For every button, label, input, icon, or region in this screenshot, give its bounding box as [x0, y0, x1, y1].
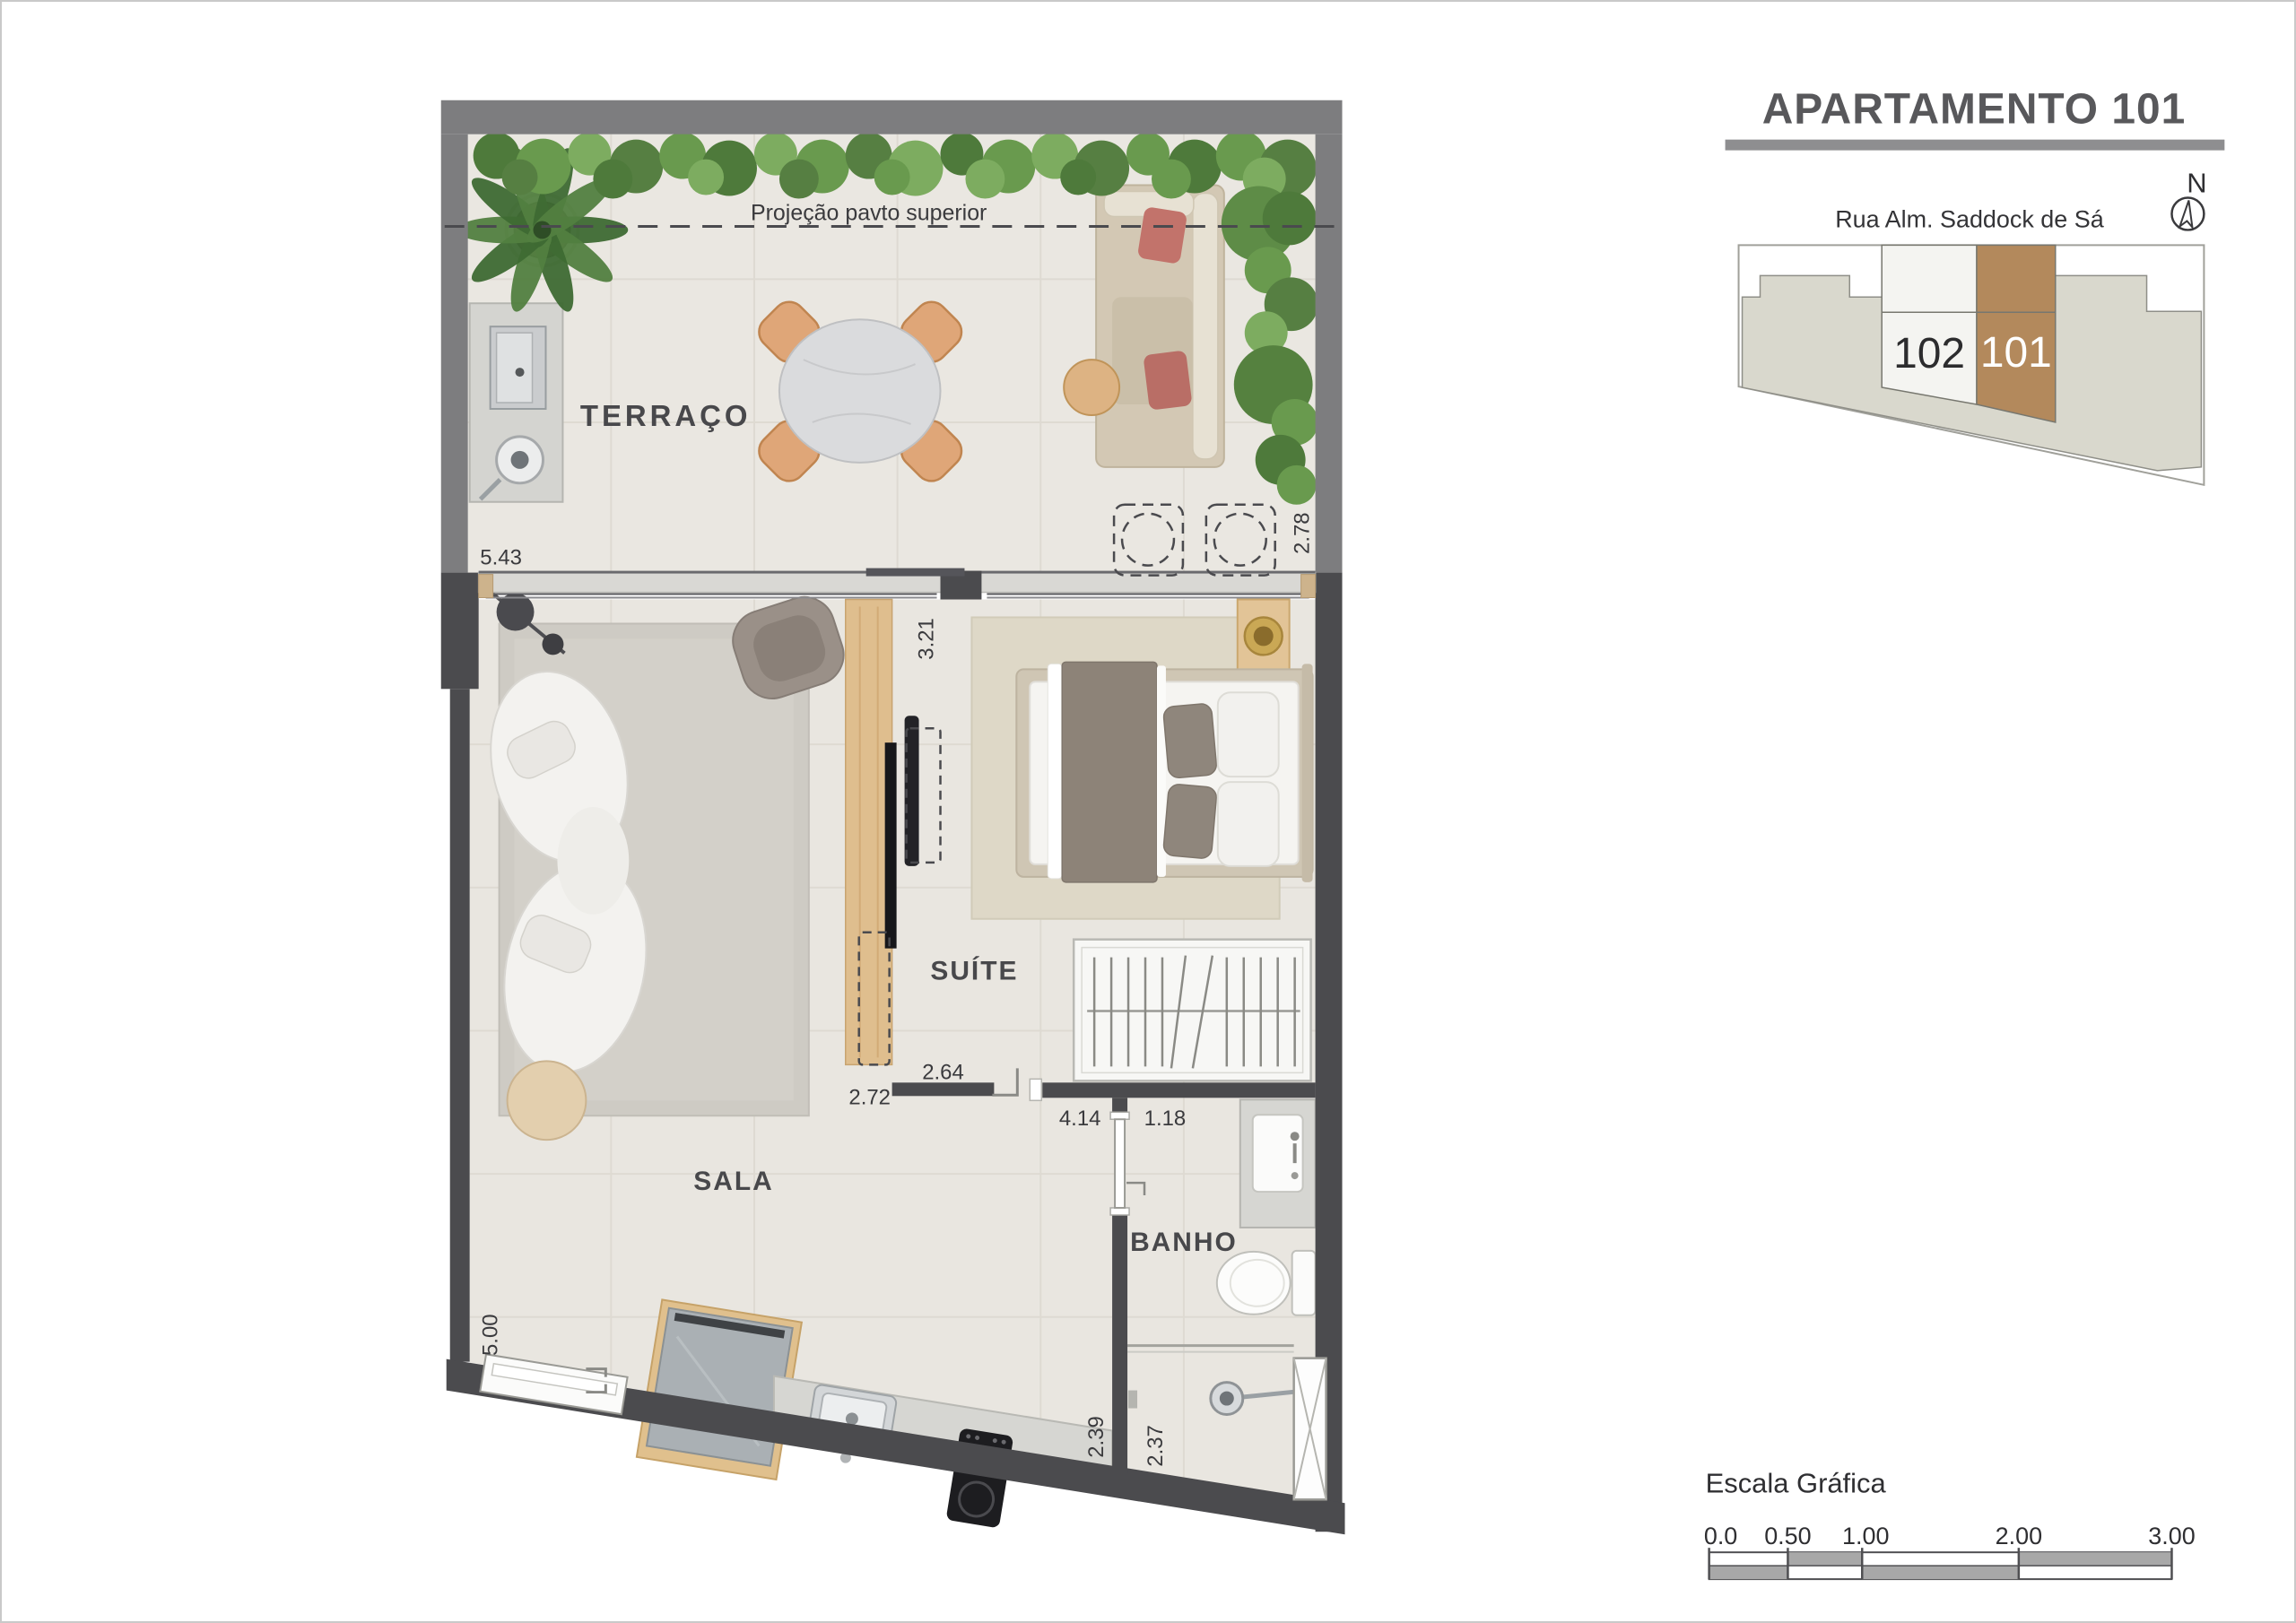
wall-bath-stub: [1112, 1098, 1127, 1112]
unit-101-label: 101: [1980, 329, 2052, 377]
wall-left-upper: [441, 573, 479, 690]
dim-living-length: 4.14: [1059, 1107, 1101, 1131]
terrace-wall-top: [441, 100, 1343, 135]
dim-terrace-side: 2.78: [1291, 512, 1315, 554]
wardrobe: [1074, 940, 1310, 1081]
sliding-door-band: [479, 568, 1316, 600]
bath-vanity: [1240, 1099, 1316, 1228]
scale-tick-3: 2.00: [1996, 1523, 2042, 1549]
dim-living-side: 5.00: [479, 1314, 503, 1356]
side-table: [1064, 360, 1119, 415]
street-label: Rua Alm. Saddock de Sá: [1835, 205, 2104, 232]
bbq-counter: [470, 303, 563, 502]
scale-title: Escala Gráfica: [1706, 1467, 1887, 1498]
dim-tv-wall: 2.72: [848, 1085, 891, 1109]
scale-tick-0: 0.0: [1704, 1523, 1737, 1549]
scale-tick-2: 1.00: [1842, 1523, 1889, 1549]
unit-102-label: 102: [1893, 330, 1965, 378]
title-block: APARTAMENTO 101: [1726, 86, 2225, 151]
wall-suite-thick: [1042, 1082, 1315, 1098]
keymap-unit-102: [1882, 245, 1977, 404]
terrace-wall-left: [441, 135, 468, 573]
scale-tick-4: 3.00: [2148, 1523, 2195, 1549]
outdoor-dining-set: [752, 295, 968, 488]
scale-tick-1: 0.50: [1764, 1523, 1811, 1549]
slider-handle-bar: [866, 568, 965, 577]
travertine-table: [508, 1061, 587, 1140]
dim-suite-front: 2.64: [922, 1060, 964, 1084]
dim-suite-side: 3.21: [915, 618, 939, 660]
dim-shower-side: 2.37: [1144, 1425, 1168, 1467]
double-bed: [1016, 662, 1312, 881]
bath-window: [1294, 1358, 1326, 1500]
north-label: N: [2187, 168, 2206, 199]
room-label-suite: SUÍTE: [930, 956, 1018, 986]
title-underline: [1726, 140, 2225, 151]
projection-label: Projeção pavto superior: [751, 200, 987, 225]
floorplan-sheet: TERRAÇO SALA SUÍTE BANHO Projeção pavto …: [0, 0, 2296, 1623]
wall-left-lower: [450, 689, 470, 1361]
dim-kitchen-side: 2.39: [1084, 1416, 1109, 1458]
room-label-bath: BANHO: [1130, 1228, 1238, 1257]
room-label-living: SALA: [693, 1167, 773, 1196]
terrace-wall-right: [1316, 135, 1343, 573]
key-map: Rua Alm. Saddock de Sá 102 101: [1739, 205, 2205, 484]
room-label-terrace: TERRAÇO: [580, 399, 752, 432]
nightstand: [1238, 600, 1290, 673]
page-title: APARTAMENTO 101: [1762, 86, 2187, 134]
dim-bath-front: 1.18: [1144, 1107, 1187, 1131]
scale-bar: Escala Gráfica 0.0 0.50 1.00 2.00 3.00: [1704, 1467, 2196, 1579]
toilet: [1217, 1251, 1316, 1315]
compass: N: [2171, 168, 2206, 230]
wall-bath-left: [1112, 1214, 1127, 1473]
wall-suite-thin: [892, 1082, 995, 1096]
sheet-graphics: TERRAÇO SALA SUÍTE BANHO Projeção pavto …: [2, 2, 2294, 1621]
dim-terrace-front: 5.43: [480, 546, 522, 570]
